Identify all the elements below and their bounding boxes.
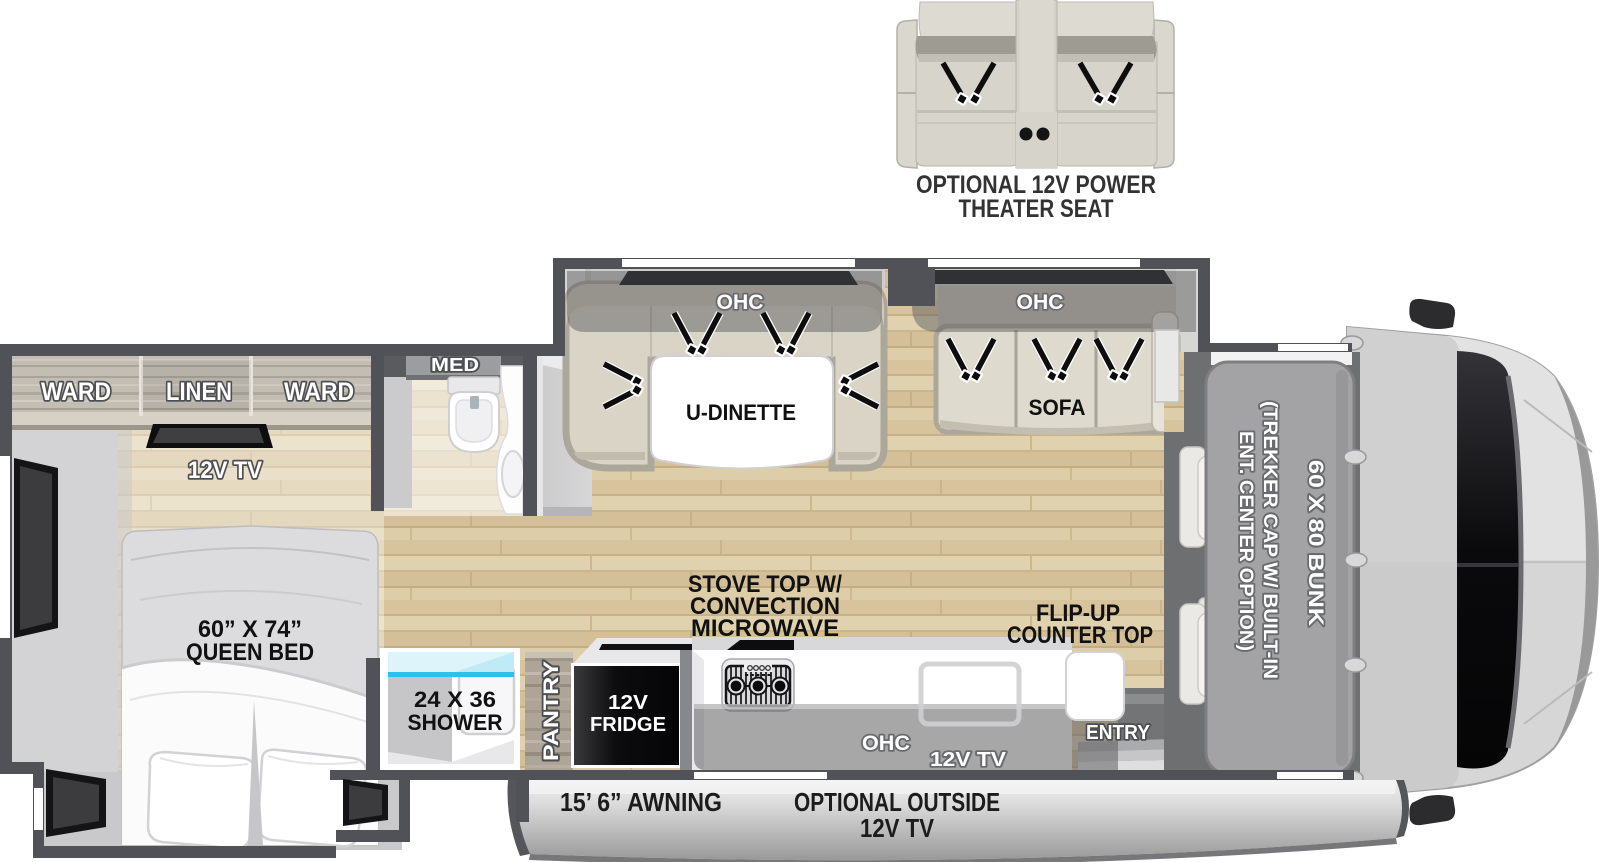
- svg-text:QUEEN BED: QUEEN BED: [186, 639, 314, 666]
- svg-text:SOFA: SOFA: [1029, 395, 1086, 420]
- svg-text:MED: MED: [431, 355, 479, 375]
- svg-text:12V: 12V: [608, 692, 649, 714]
- svg-text:SHOWER: SHOWER: [408, 710, 503, 735]
- svg-text:12V TV: 12V TV: [860, 813, 935, 843]
- svg-text:WARD: WARD: [41, 378, 111, 406]
- svg-text:OHC: OHC: [862, 732, 910, 755]
- svg-text:THEATER SEAT: THEATER SEAT: [959, 195, 1114, 223]
- svg-text:(TREKKER CAP W/ BUILT-IN: (TREKKER CAP W/ BUILT-IN: [1259, 401, 1280, 679]
- svg-text:PANTRY: PANTRY: [540, 661, 563, 761]
- svg-text:12V TV: 12V TV: [188, 457, 262, 484]
- svg-text:WARD: WARD: [284, 378, 354, 406]
- svg-text:OHC: OHC: [1017, 291, 1064, 314]
- svg-text:OHC: OHC: [717, 291, 764, 314]
- svg-text:FRIDGE: FRIDGE: [590, 714, 666, 736]
- svg-text:U-DINETTE: U-DINETTE: [686, 400, 796, 425]
- svg-text:ENTRY: ENTRY: [1086, 722, 1151, 744]
- svg-text:ENT. CENTER OPTION): ENT. CENTER OPTION): [1235, 431, 1256, 651]
- svg-text:12V TV: 12V TV: [930, 749, 1007, 771]
- svg-text:COUNTER TOP: COUNTER TOP: [1007, 622, 1153, 649]
- svg-text:LINEN: LINEN: [166, 378, 232, 406]
- svg-text:24 X 36: 24 X 36: [414, 687, 496, 712]
- svg-text:MICROWAVE: MICROWAVE: [691, 615, 839, 642]
- svg-text:60 X 80 BUNK: 60 X 80 BUNK: [1304, 460, 1327, 626]
- svg-text:15’ 6” AWNING: 15’ 6” AWNING: [560, 787, 722, 817]
